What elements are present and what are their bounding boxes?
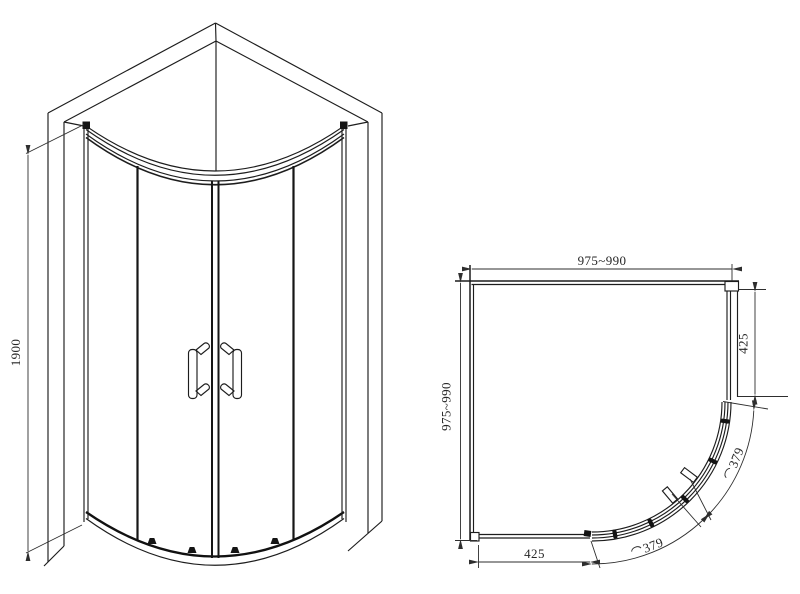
dim-bottom-panel-label: 425 (524, 546, 545, 561)
drawing-canvas: 1900 (0, 0, 800, 594)
technical-drawing: 1900 (0, 0, 800, 594)
post-cap-left (83, 122, 91, 130)
dim-left-depth-label: 975~990 (439, 382, 454, 431)
page-background (0, 0, 800, 594)
dim-height-label: 1900 (8, 339, 23, 367)
dim-right-panel-label: 425 (736, 333, 751, 354)
post-cap-right (340, 122, 348, 130)
dim-top-width-label: 975~990 (578, 253, 627, 268)
panel-end-fitting (584, 530, 592, 537)
